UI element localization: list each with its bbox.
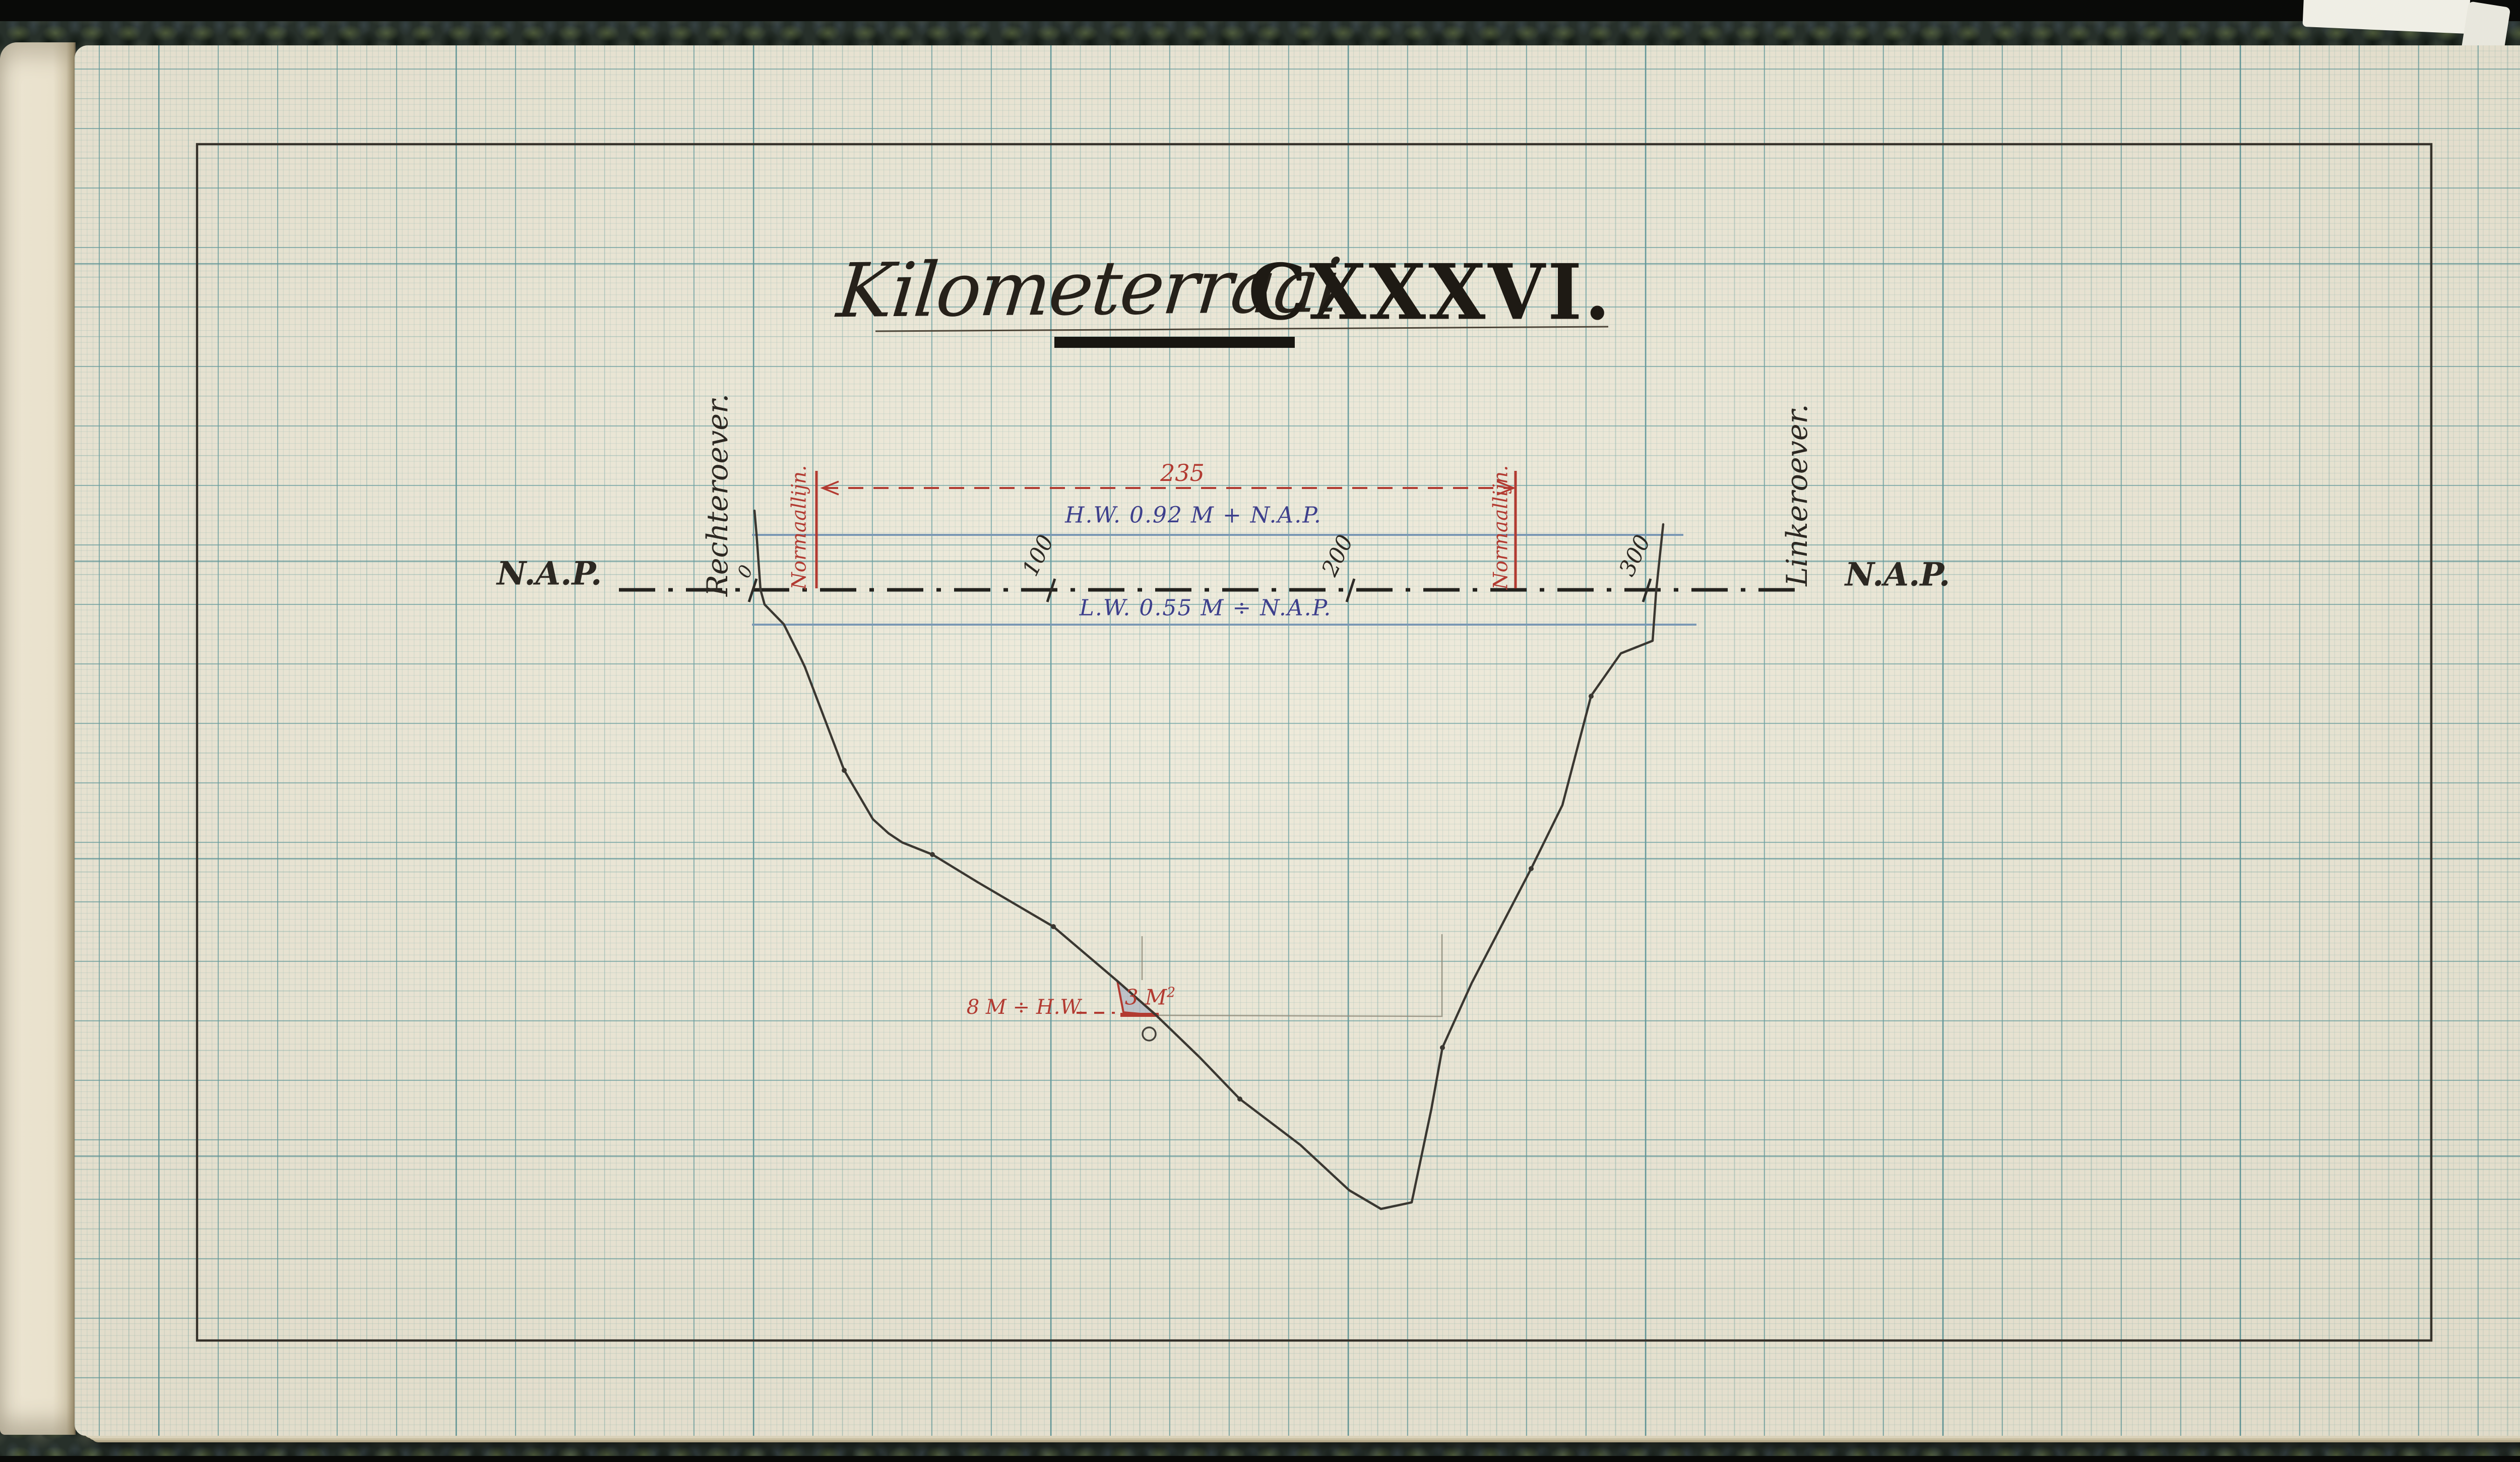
nap-datum-label-left: N.A.P. [497, 555, 602, 593]
left-bank-label: Linkeroever. [1781, 404, 1814, 586]
scanned-album-page: Kilometerraai CXXXVI. N.A.P. N.A.P. Rech… [0, 0, 2520, 1462]
high-water-label: H.W. 0.92 M + N.A.P. [1065, 503, 1322, 528]
area-value: 3 M [1125, 985, 1167, 1010]
page-title-roman-numeral: CXXXVI. [1248, 248, 1612, 337]
low-water-label: L.W. 0.55 M ÷ N.A.P. [1080, 595, 1332, 621]
span-dimension-value: 235 [1160, 459, 1205, 486]
normaallijn-label-right: Normaallijn. [1490, 465, 1513, 590]
pencil-construction-lines [1142, 934, 1442, 1016]
right-bank-label: Rechteroever. [701, 394, 734, 596]
depth-annotation-label: 8 M ÷ H.W. [967, 996, 1084, 1019]
area-exponent: 2 [1167, 985, 1175, 1001]
sounding-circle [1143, 1027, 1156, 1041]
cross-section-drawing [0, 0, 2520, 1462]
survey-point-dots [842, 694, 1594, 1102]
nap-datum-label-right: N.A.P. [1845, 556, 1950, 594]
area-annotation-label: 3 M2 [1125, 985, 1175, 1010]
normaallijn-label-left: Normaallijn. [788, 465, 811, 590]
